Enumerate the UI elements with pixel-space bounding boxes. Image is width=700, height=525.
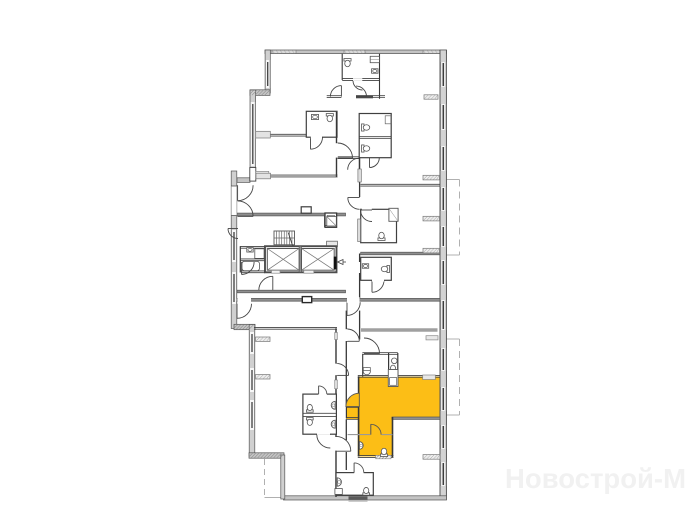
svg-text:Новострой-М: Новострой-М: [505, 463, 686, 494]
